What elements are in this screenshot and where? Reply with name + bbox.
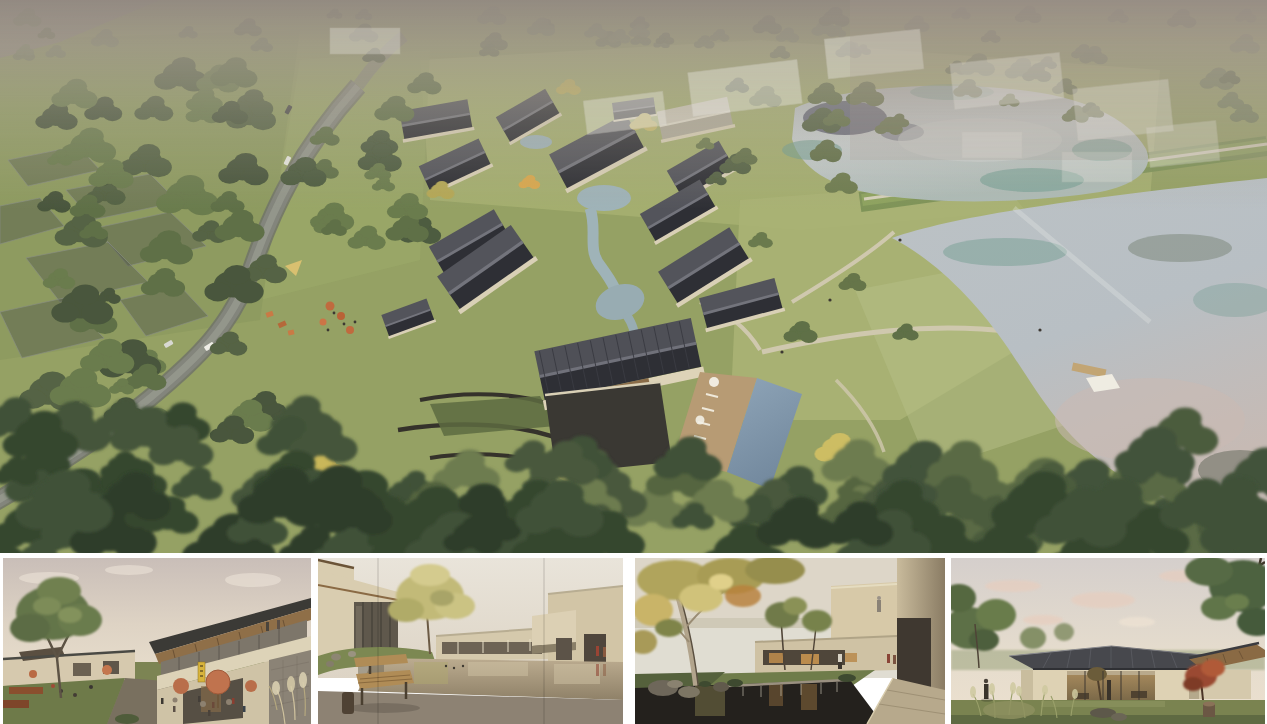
garden-pavilion — [755, 636, 897, 674]
thumbnail-pavilion-render — [951, 558, 1265, 724]
stump — [1203, 702, 1215, 718]
shrub — [115, 714, 139, 724]
interior-glow — [769, 653, 783, 663]
figure-rust-coat — [603, 647, 606, 657]
distant-figure — [893, 655, 896, 664]
umbrella — [206, 670, 230, 694]
umbrella — [173, 678, 189, 694]
render-board — [0, 0, 1267, 724]
corten-planter — [9, 687, 43, 694]
thumbnail-street-view-render — [3, 558, 311, 724]
pool-umbrella — [696, 416, 705, 425]
corten-planter — [3, 700, 29, 708]
person-on-balcony — [277, 620, 280, 629]
distant-figure — [887, 654, 890, 663]
person-on-balcony — [877, 600, 881, 612]
carved-stool — [342, 692, 354, 714]
aerial-masterplan-render — [0, 0, 1267, 553]
person-on-balcony — [266, 622, 269, 631]
umbrella — [245, 680, 257, 692]
figure-red-coat — [596, 646, 599, 656]
umbrella — [29, 670, 37, 678]
dark-opening — [584, 634, 606, 662]
balcony-box — [831, 582, 897, 640]
pool-umbrella — [709, 377, 719, 387]
thumbnail-waterfall-courtyard-render — [635, 558, 945, 724]
person-in-opening — [1107, 680, 1111, 700]
thumbnail-pond-courtyard-render — [318, 558, 623, 724]
umbrella — [102, 665, 112, 675]
interior-glow — [845, 653, 857, 662]
interior-glow — [801, 654, 819, 664]
